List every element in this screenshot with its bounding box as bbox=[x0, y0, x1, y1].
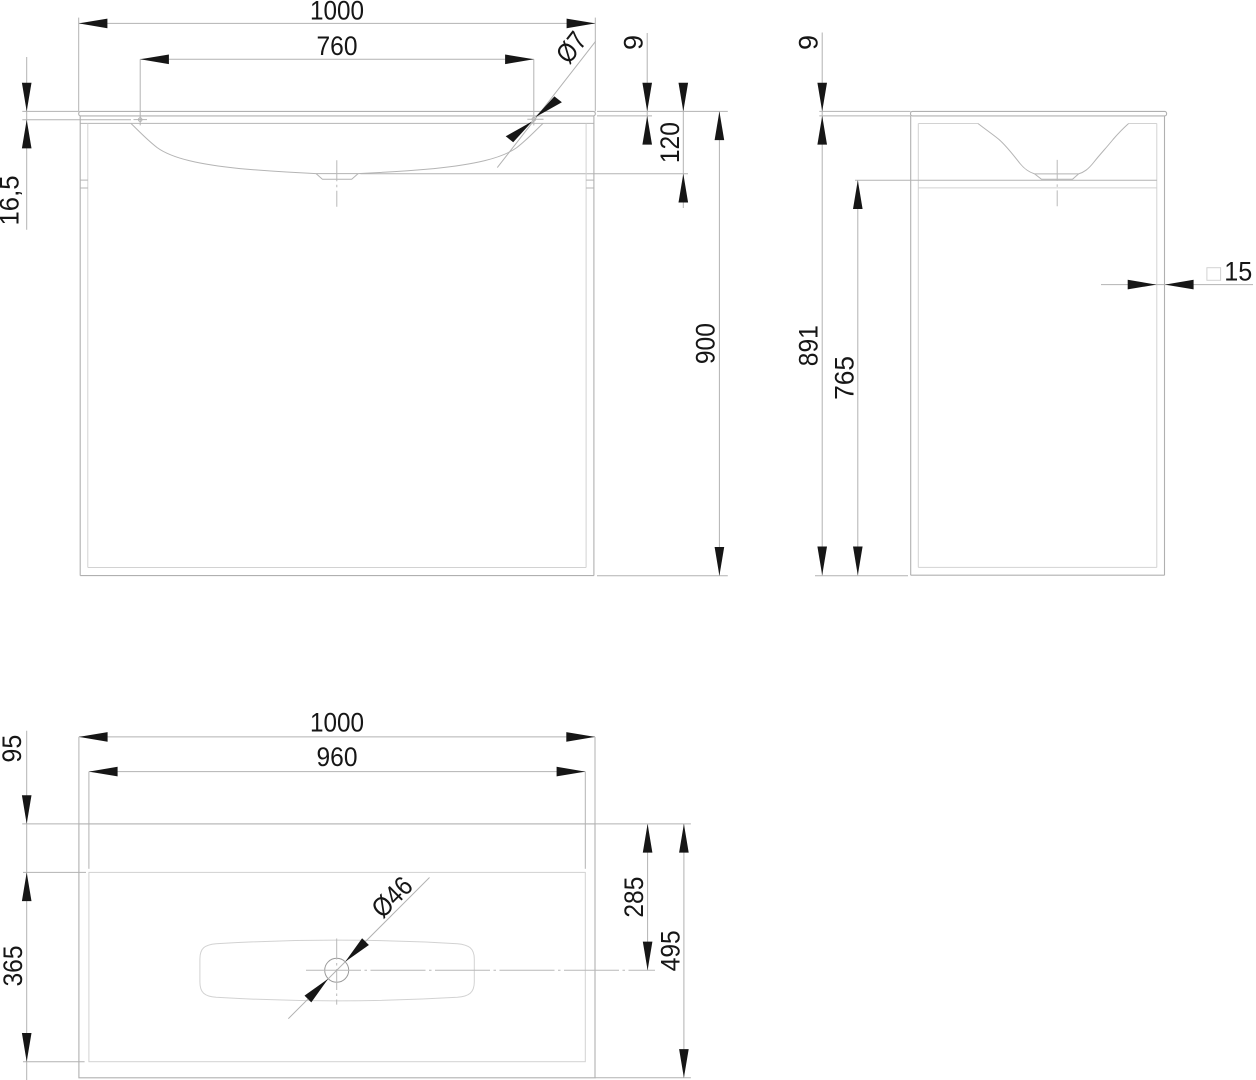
svg-text:120: 120 bbox=[655, 122, 685, 163]
svg-text:960: 960 bbox=[317, 742, 358, 772]
svg-text:Ø7: Ø7 bbox=[550, 26, 593, 69]
svg-text:15: 15 bbox=[1224, 256, 1252, 286]
svg-text:Ø46: Ø46 bbox=[366, 871, 419, 924]
svg-text:365: 365 bbox=[0, 946, 28, 987]
svg-text:495: 495 bbox=[655, 930, 685, 971]
svg-text:891: 891 bbox=[794, 325, 824, 366]
svg-text:1000: 1000 bbox=[310, 708, 364, 738]
svg-text:16,5: 16,5 bbox=[0, 176, 25, 226]
svg-text:95: 95 bbox=[0, 735, 27, 763]
svg-text:1000: 1000 bbox=[310, 0, 364, 25]
svg-text:285: 285 bbox=[619, 877, 649, 918]
svg-text:900: 900 bbox=[690, 323, 720, 364]
svg-text:9: 9 bbox=[619, 35, 649, 50]
svg-text:765: 765 bbox=[829, 356, 859, 400]
svg-text:9: 9 bbox=[794, 35, 824, 50]
svg-text:760: 760 bbox=[317, 31, 358, 61]
